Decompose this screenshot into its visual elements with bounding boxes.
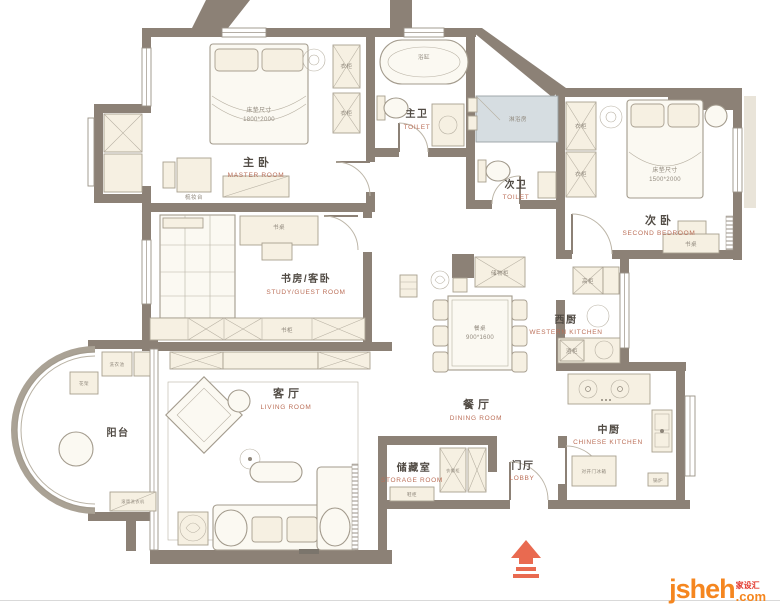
armchair [166,377,242,453]
second-bed-size: 1500*2000 [649,177,681,183]
living-label-zh: 客厅 [272,386,303,400]
utility-niche [104,114,142,192]
svg-text:梳妆台: 梳妆台 [185,193,203,201]
svg-text:书桌: 书桌 [685,240,697,248]
svg-text:浴缸: 浴缸 [418,53,430,61]
logo-tld: .com [736,590,766,603]
svg-text:花架: 花架 [79,380,89,387]
ceiling-lamp-icon [600,106,622,128]
study-label-en: STUDY/GUEST ROOM [266,289,345,296]
toilet-icon [377,96,408,120]
logo-text: jsheh [669,576,735,603]
bookcase: 书柜 [150,318,365,340]
room-lobby: 门厅 LOBBY [509,459,541,578]
svg-text:书柜: 书柜 [281,326,293,334]
second-bath-label-zh: 次卫 [505,178,528,191]
room-storage: 鞋柜 衣帽柜 储藏室 STORAGE ROOM [381,448,486,501]
bathtub: 浴缸 [380,40,468,84]
svg-text:锅炉: 锅炉 [653,477,663,484]
room-master-bath: 浴缸 主卫 TOILET [377,40,468,146]
balcony-label-zh: 阳台 [107,426,130,439]
wardrobe-icon: 衣柜 衣柜 [566,102,596,197]
balcony-table [59,432,93,466]
room-balcony: 洗衣池 花架 滚筒洗衣机 阳台 [59,352,156,511]
second-bath-label-en: TOILET [503,194,530,201]
coffee-table [250,462,302,482]
chinese-kitchen-label-en: CHINESE KITCHEN [573,439,643,446]
dresser: 梳妆台 [163,158,211,201]
tall-cabinet: 高柜 [573,267,619,294]
svg-text:酒柜: 酒柜 [566,347,578,355]
svg-text:衣柜: 衣柜 [340,109,352,117]
room-west-kitchen: 高柜 酒柜 西厨 WESTERN KITCHEN [529,267,620,363]
svg-text:对开门冰箱: 对开门冰箱 [582,468,607,475]
radiator-icon [726,216,733,250]
living-label-en: LIVING ROOM [260,404,311,411]
bedside-table [705,105,727,127]
basin-icon [587,305,609,327]
svg-text:书桌: 书桌 [273,223,285,231]
dining-label-zh: 餐厅 [462,397,493,411]
svg-text:900*1600: 900*1600 [466,335,494,341]
master-bath-label-zh: 主卫 [406,107,429,120]
toilet-icon [478,160,510,182]
storage-label-zh: 储藏室 [396,461,432,474]
bottom-divider [0,600,780,601]
stove [568,374,650,404]
svg-text:鞋柜: 鞋柜 [407,491,417,498]
svg-text:衣柜: 衣柜 [575,122,587,130]
hall-details [400,271,449,297]
wardrobe-icon: 衣柜 衣柜 [333,45,360,133]
shower: 淋浴房 [476,96,558,142]
lobby-label-zh: 门厅 [512,459,535,472]
fridge: 对开门冰箱 [572,456,616,486]
svg-text:衣柜: 衣柜 [340,62,352,70]
west-kitchen-label-zh: 西厨 [555,314,578,326]
tv-icon [299,549,319,554]
svg-text:淋浴房: 淋浴房 [509,115,527,123]
second-bedroom-label-en: SECOND BEDROOM [622,230,695,237]
floorplan-canvas: 床垫尺寸 1800*2000 衣柜 衣柜 梳妆台 主卧 MASTER ROOM [0,0,780,605]
room-study: 书桌 书柜 书房/客卧 STUDY/GUEST ROOM [150,215,365,340]
west-kitchen-label-en: WESTERN KITCHEN [529,329,602,336]
curtain-icon [352,464,358,550]
master-bed-size-label: 床垫尺寸 [246,106,271,114]
svg-text:高柜: 高柜 [582,277,594,285]
laundry-sink: 洗衣池 [102,352,150,376]
boiler: 锅炉 [648,473,668,486]
washer-cabinet: 滚筒洗衣机 [110,492,156,511]
plant-icon [178,512,208,545]
desk: 书桌 [240,216,318,260]
flower-rack: 花架 [70,372,98,394]
tv-cabinet-row [170,352,370,369]
wine-counter: 酒柜 [558,338,620,363]
tatami-bed [160,215,235,318]
second-bed-size-label: 床垫尺寸 [652,166,677,174]
master-bed-size: 1800*2000 [243,117,275,123]
svg-text:衣柜: 衣柜 [575,170,587,178]
entry-arrow [511,540,541,578]
vanity [432,104,464,146]
lobby-label-en: LOBBY [509,475,534,482]
room-second-bath: 淋浴房 次卫 TOILET [468,96,558,201]
second-bedroom-label-zh: 次卧 [645,213,675,227]
cloak-cabinet: 衣帽柜 [440,448,486,492]
study-label-zh: 书房/客卧 [281,272,331,285]
plant-icon [431,271,449,289]
kitchen-sink [652,410,672,452]
room-dining: 储物柜 餐桌 900*1600 餐厅 DINING ROOM [433,257,527,422]
dining-table: 餐桌 900*1600 [448,296,512,370]
svg-text:滚筒洗衣机: 滚筒洗衣机 [121,498,145,505]
shoe-cabinet: 鞋柜 [390,487,434,501]
master-bath-label-en: TOILET [404,124,431,131]
master-label-zh: 主卧 [243,155,273,169]
chinese-kitchen-label-zh: 中厨 [598,423,621,436]
svg-text:储物柜: 储物柜 [491,269,509,277]
room-second-bedroom: 衣柜 衣柜 床垫尺寸 1500*2000 书桌 次卧 SECOND BEDROO… [566,100,733,253]
room-living: 客厅 LIVING ROOM [166,352,370,554]
storage-label-en: STORAGE ROOM [381,477,443,484]
dining-label-en: DINING ROOM [450,415,502,422]
svg-text:餐桌: 餐桌 [474,324,486,332]
svg-text:衣帽柜: 衣帽柜 [446,467,460,474]
master-label-en: MASTER ROOM [228,172,285,179]
room-chinese-kitchen: 对开门冰箱 锅炉 中厨 CHINESE KITCHEN [568,374,672,486]
svg-text:洗衣池: 洗衣池 [110,361,125,368]
side-table [228,390,250,412]
floorplan-svg: 床垫尺寸 1800*2000 衣柜 衣柜 梳妆台 主卧 MASTER ROOM [0,0,780,605]
jsheh-logo: jsheh 家设汇 .com [669,576,766,603]
